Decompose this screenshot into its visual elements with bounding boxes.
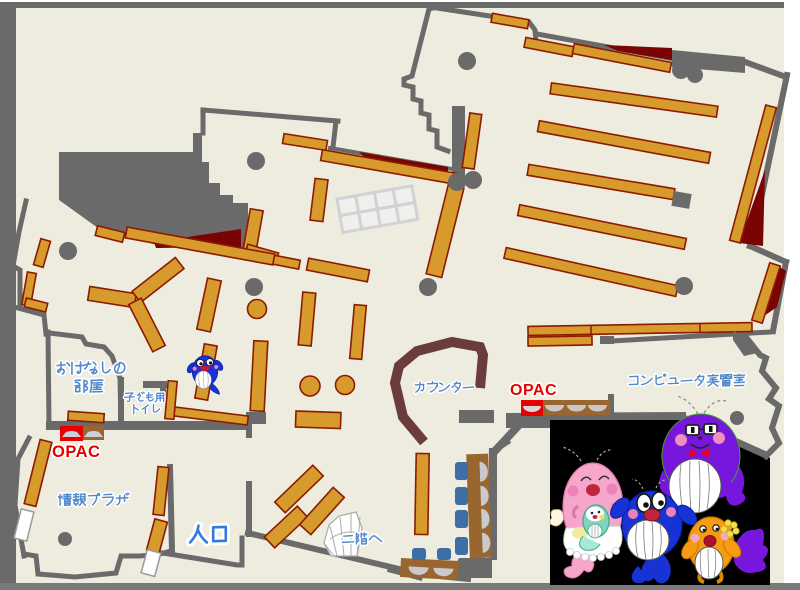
svg-text:OPAC: OPAC: [510, 382, 557, 399]
svg-text:OPAC: OPAC: [52, 443, 100, 461]
